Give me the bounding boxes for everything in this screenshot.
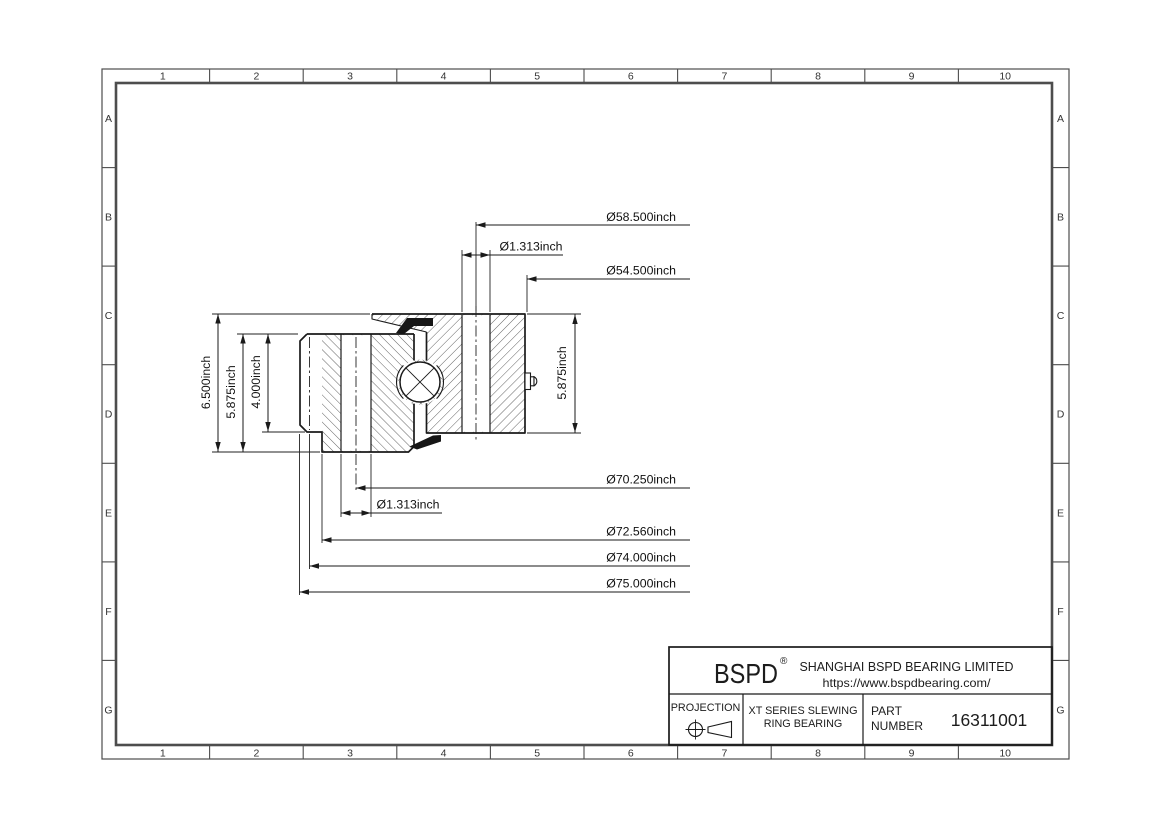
grid-col-label-bottom: 1 — [160, 748, 166, 760]
grid-col-label-bottom: 3 — [347, 748, 353, 760]
bearing-cross-section — [300, 306, 537, 492]
dim-label-d-74000: Ø74.000inch — [606, 551, 676, 565]
dim-label-height-6500: 6.500inch — [199, 356, 213, 409]
grid-row-label-right: E — [1057, 507, 1064, 519]
grid-col-label-bottom: 4 — [441, 748, 447, 760]
bearing-drawing-canvas: 1 2 3 4 5 6 7 8 9 10 1 2 3 4 5 6 7 8 9 1… — [0, 0, 1170, 827]
grid-row-label-right: F — [1057, 606, 1063, 618]
grid-row-label-left: D — [105, 409, 113, 421]
grid-col-label-bottom: 6 — [628, 748, 634, 760]
grid-row-label-left: C — [105, 310, 113, 322]
dim-label-hole-1313-bottom: Ø1.313inch — [377, 498, 440, 512]
drawing-sheet: 1 2 3 4 5 6 7 8 9 10 1 2 3 4 5 6 7 8 9 1… — [0, 0, 1170, 827]
grid-labels: 1 2 3 4 5 6 7 8 9 10 1 2 3 4 5 6 7 8 9 1… — [104, 71, 1064, 760]
dim-label-hole-1313-top: Ø1.313inch — [500, 240, 563, 254]
grid-row-label-left: A — [105, 113, 112, 125]
grid-col-label-top: 8 — [815, 71, 821, 83]
grid-col-label-bottom: 9 — [909, 748, 915, 760]
grease-fitting — [525, 373, 537, 390]
grid-col-label-bottom: 5 — [534, 748, 540, 760]
grid-col-label-bottom: 8 — [815, 748, 821, 760]
sheet-frame — [102, 69, 1069, 759]
grid-col-label-top: 3 — [347, 71, 353, 83]
dim-label-height-5875-right: 5.875inch — [555, 346, 569, 399]
dim-label-d-72560: Ø72.560inch — [606, 525, 676, 539]
brand-logo-text: BSPD — [714, 658, 778, 689]
grid-col-label-top: 2 — [253, 71, 259, 83]
grid-row-label-left: G — [104, 704, 112, 716]
grid-row-label-right: A — [1057, 113, 1064, 125]
grid-col-label-top: 5 — [534, 71, 540, 83]
grid-col-label-top: 10 — [999, 71, 1011, 83]
grid-row-label-right: B — [1057, 212, 1064, 224]
part-label-line1: PART — [871, 704, 903, 718]
grid-col-label-bottom: 7 — [721, 748, 727, 760]
dim-label-height-5875-left: 5.875inch — [224, 365, 238, 418]
grid-row-label-right: G — [1056, 704, 1064, 716]
grid-row-label-right: D — [1057, 409, 1065, 421]
company-website: https://www.bspdbearing.com/ — [823, 676, 992, 690]
dim-label-bcd-70250: Ø70.250inch — [606, 473, 676, 487]
dim-label-id-54500: Ø54.500inch — [606, 264, 676, 278]
grid-col-label-top: 1 — [160, 71, 166, 83]
grid-col-label-top: 4 — [441, 71, 447, 83]
grid-col-label-bottom: 10 — [999, 748, 1011, 760]
grid-row-label-right: C — [1057, 310, 1065, 322]
projection-label: PROJECTION — [671, 702, 741, 714]
grid-row-label-left: B — [105, 212, 112, 224]
grid-row-label-left: E — [105, 507, 112, 519]
dim-label-od-58500: Ø58.500inch — [606, 210, 676, 224]
grid-col-label-bottom: 2 — [253, 748, 259, 760]
dim-label-d-75000: Ø75.000inch — [606, 577, 676, 591]
projection-symbol-icon — [686, 720, 732, 740]
registered-trademark-symbol: ® — [780, 656, 788, 667]
grid-col-label-top: 9 — [909, 71, 915, 83]
grid-row-label-left: F — [105, 606, 111, 618]
grid-col-label-top: 6 — [628, 71, 634, 83]
title-block: BSPD ® SHANGHAI BSPD BEARING LIMITED htt… — [669, 647, 1052, 745]
series-title-line1: XT SERIES SLEWING — [749, 705, 858, 717]
grid-col-label-top: 7 — [721, 71, 727, 83]
grid-ticks — [102, 69, 1069, 759]
dim-label-height-4000: 4.000inch — [249, 355, 263, 408]
company-name: SHANGHAI BSPD BEARING LIMITED — [800, 659, 1014, 674]
part-label-line2: NUMBER — [871, 719, 923, 733]
part-number-value: 16311001 — [951, 710, 1028, 730]
series-title-line2: RING BEARING — [764, 718, 843, 730]
